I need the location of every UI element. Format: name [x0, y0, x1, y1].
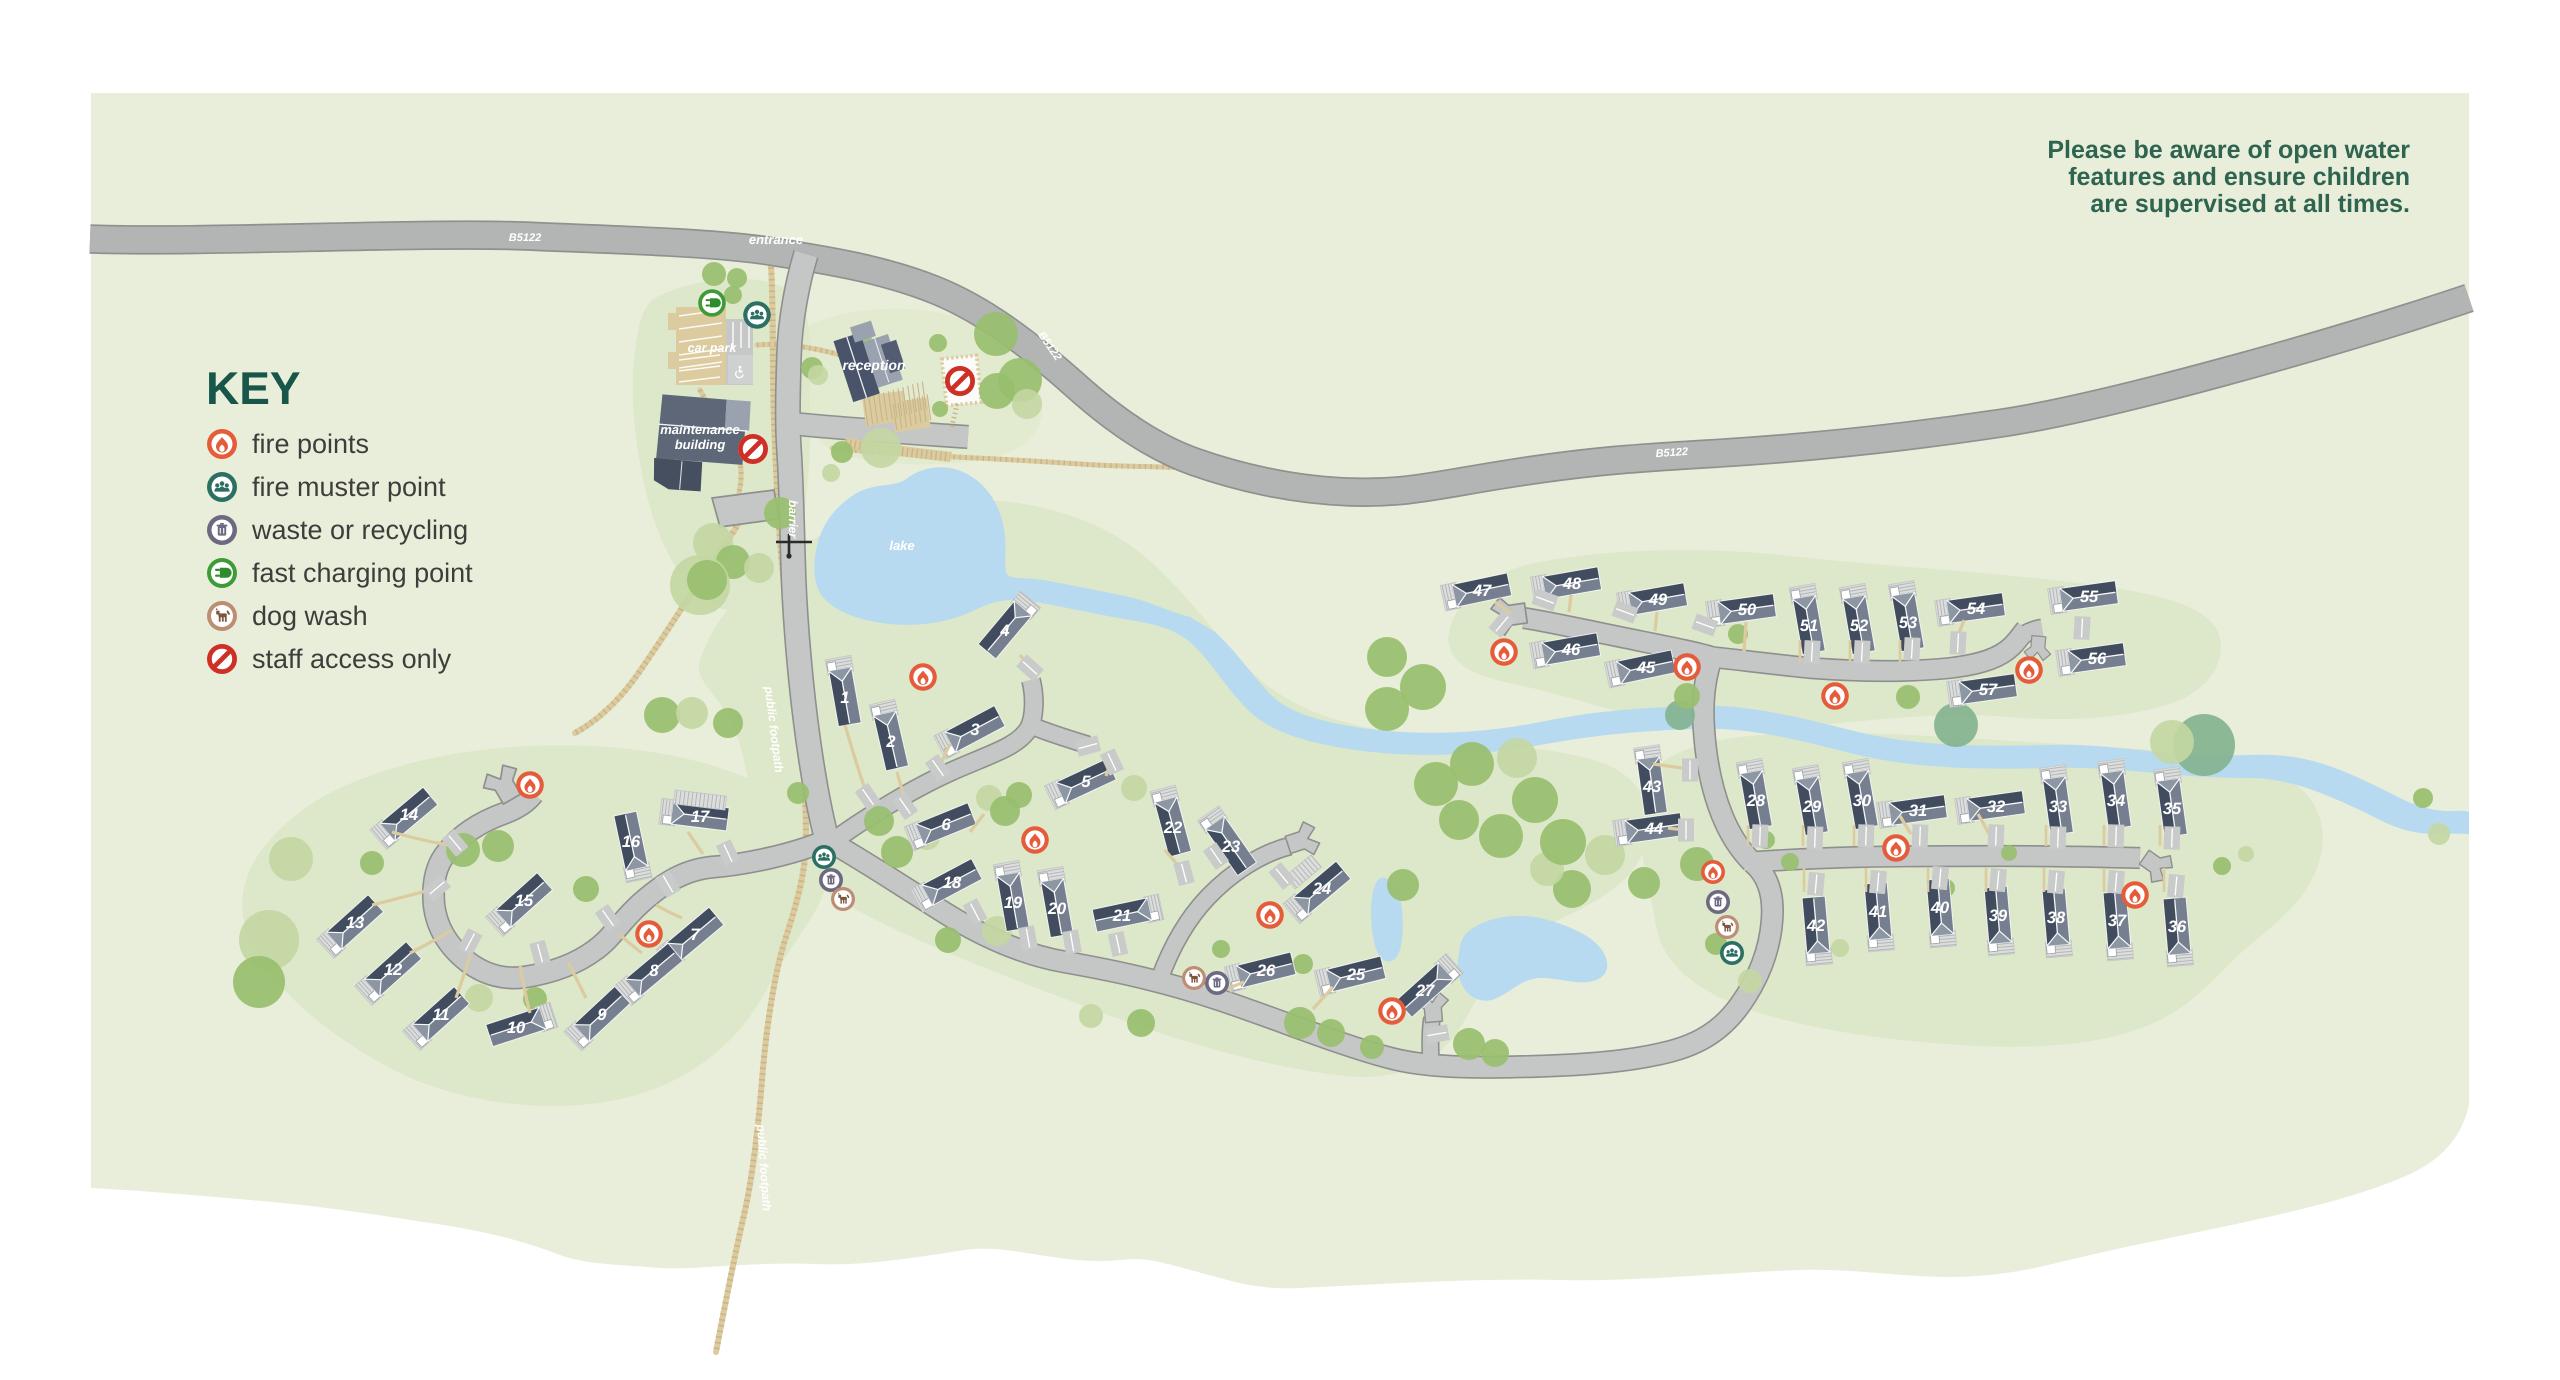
svg-text:entrance: entrance [749, 232, 803, 247]
svg-text:45: 45 [1636, 659, 1656, 677]
svg-text:17: 17 [691, 808, 710, 826]
svg-text:barrier: barrier [786, 500, 800, 539]
svg-text:39: 39 [1989, 907, 2008, 925]
svg-text:12: 12 [384, 961, 402, 979]
svg-text:31: 31 [1909, 802, 1927, 820]
svg-text:56: 56 [2088, 650, 2107, 668]
svg-text:54: 54 [1967, 600, 1985, 618]
svg-text:1: 1 [840, 689, 849, 707]
svg-text:9: 9 [597, 1006, 607, 1024]
svg-text:11: 11 [432, 1006, 449, 1024]
svg-text:4: 4 [999, 622, 1009, 640]
svg-text:KEY: KEY [206, 362, 301, 414]
svg-text:car park: car park [688, 341, 738, 355]
svg-text:49: 49 [1648, 591, 1668, 609]
svg-text:13: 13 [346, 914, 364, 932]
svg-text:staff access only: staff access only [252, 644, 452, 674]
svg-text:18: 18 [943, 874, 962, 892]
svg-text:20: 20 [1047, 900, 1067, 918]
svg-text:building: building [675, 437, 726, 452]
svg-text:2: 2 [885, 733, 895, 751]
svg-text:47: 47 [1472, 582, 1492, 600]
svg-text:Please be aware of open water: Please be aware of open water [2047, 136, 2410, 164]
svg-text:32: 32 [1987, 798, 2005, 816]
svg-text:16: 16 [622, 833, 641, 851]
svg-text:43: 43 [1642, 778, 1661, 796]
svg-text:lake: lake [889, 538, 914, 553]
svg-text:50: 50 [1738, 601, 1757, 619]
svg-text:57: 57 [1979, 681, 1998, 699]
svg-text:33: 33 [2049, 798, 2067, 816]
svg-text:40: 40 [1930, 899, 1950, 917]
svg-text:fire muster point: fire muster point [252, 472, 446, 502]
svg-text:14: 14 [400, 806, 418, 824]
svg-text:waste or recycling: waste or recycling [251, 515, 468, 545]
svg-text:dog wash: dog wash [252, 601, 368, 631]
svg-text:29: 29 [1802, 798, 1822, 816]
svg-text:55: 55 [2080, 588, 2099, 606]
svg-text:46: 46 [1561, 641, 1581, 659]
svg-text:51: 51 [1800, 617, 1818, 635]
svg-text:36: 36 [2168, 918, 2187, 936]
svg-text:35: 35 [2163, 800, 2182, 818]
svg-text:B5122: B5122 [509, 232, 541, 244]
svg-text:44: 44 [1644, 820, 1663, 838]
svg-text:53: 53 [1899, 614, 1917, 632]
svg-text:maintenance: maintenance [660, 422, 739, 437]
svg-text:30: 30 [1853, 792, 1872, 810]
svg-text:19: 19 [1004, 894, 1023, 912]
svg-text:5: 5 [1081, 773, 1091, 791]
svg-text:25: 25 [1346, 966, 1366, 984]
svg-text:10: 10 [507, 1019, 526, 1037]
svg-text:15: 15 [515, 892, 534, 910]
svg-text:are supervised at all times.: are supervised at all times. [2090, 190, 2410, 218]
svg-text:28: 28 [1746, 792, 1766, 810]
svg-text:41: 41 [1868, 903, 1887, 921]
svg-text:27: 27 [1415, 982, 1435, 1000]
svg-text:7: 7 [690, 926, 700, 944]
svg-text:52: 52 [1850, 617, 1868, 635]
svg-text:21: 21 [1112, 907, 1131, 925]
svg-text:26: 26 [1256, 962, 1276, 980]
svg-text:B5122: B5122 [1655, 446, 1688, 460]
svg-text:8: 8 [649, 962, 659, 980]
svg-text:37: 37 [2108, 912, 2127, 930]
svg-text:48: 48 [1562, 575, 1582, 593]
svg-text:fast charging point: fast charging point [252, 558, 473, 588]
svg-text:42: 42 [1806, 917, 1825, 935]
svg-text:34: 34 [2107, 792, 2125, 810]
svg-text:fire points: fire points [252, 429, 369, 459]
svg-text:reception: reception [842, 357, 905, 373]
svg-text:22: 22 [1163, 819, 1182, 837]
svg-text:24: 24 [1312, 880, 1331, 898]
svg-text:features and ensure children: features and ensure children [2068, 163, 2410, 191]
svg-text:38: 38 [2047, 909, 2066, 927]
svg-text:6: 6 [941, 816, 951, 834]
svg-text:3: 3 [970, 721, 979, 739]
